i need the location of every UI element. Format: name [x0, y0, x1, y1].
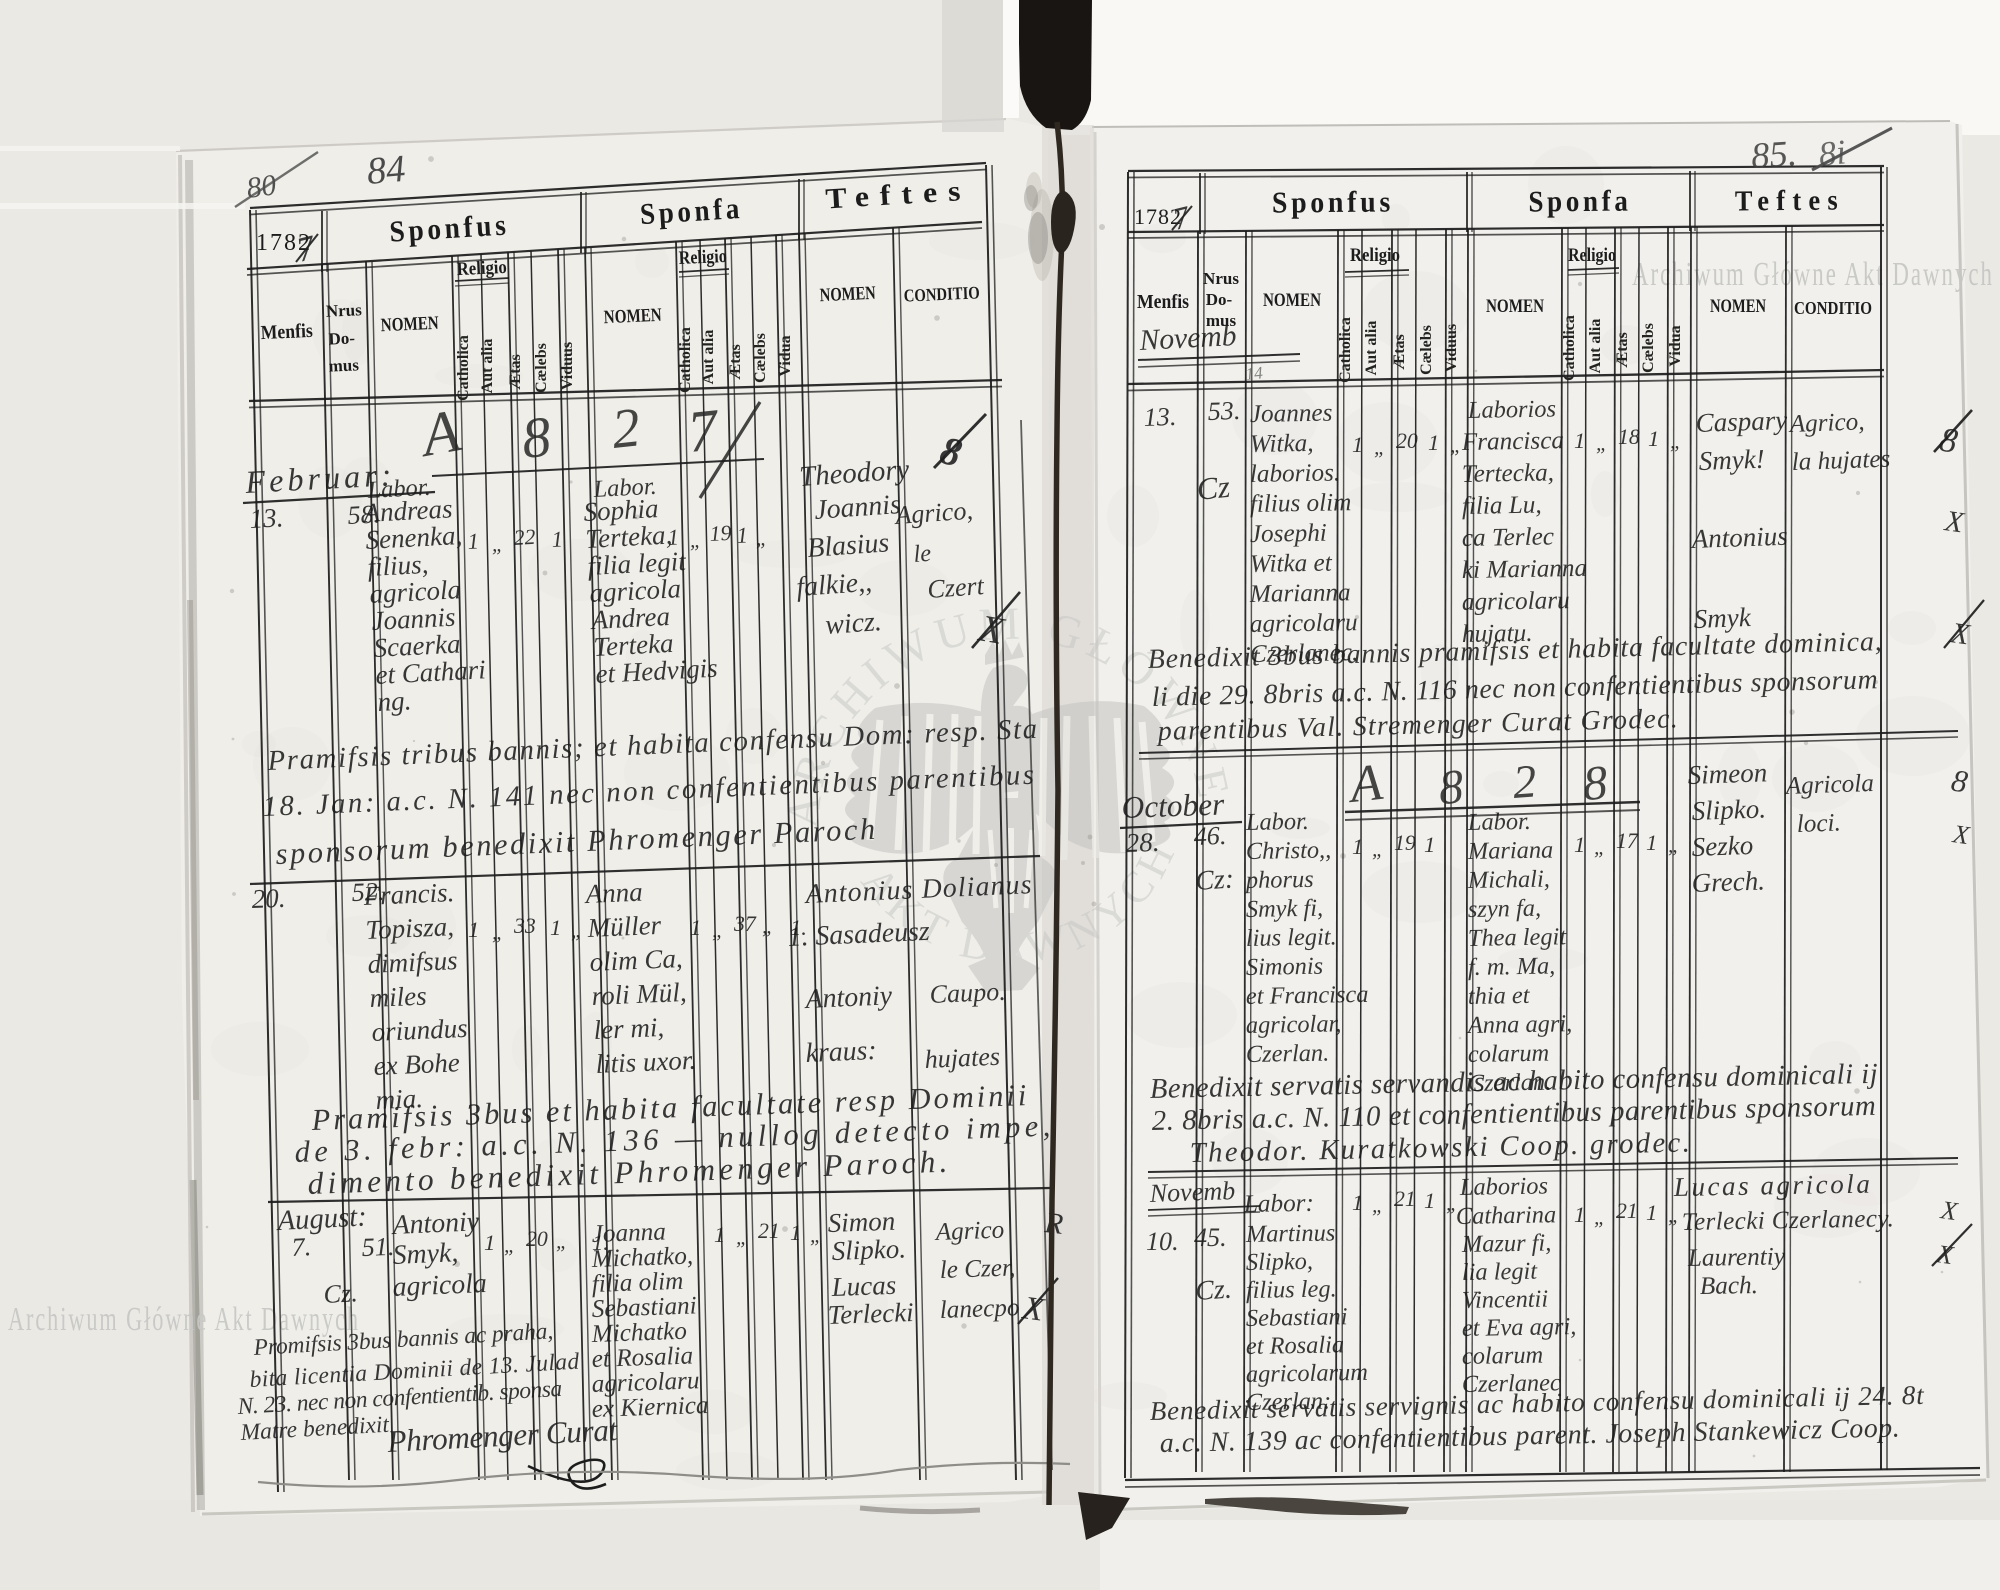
- svg-text:ca Terlec: ca Terlec: [1462, 523, 1555, 552]
- svg-text:17: 17: [1616, 829, 1639, 853]
- svg-text:„: „: [810, 1223, 822, 1247]
- svg-text:NOMEN: NOMEN: [1263, 290, 1321, 311]
- svg-text:ex Bohe: ex Bohe: [373, 1047, 460, 1081]
- svg-text:„: „: [1594, 835, 1606, 859]
- svg-text:lia legit: lia legit: [1462, 1258, 1539, 1286]
- svg-text:1: 1: [690, 915, 701, 940]
- svg-text:mus: mus: [328, 355, 359, 375]
- svg-text:„: „: [492, 532, 504, 556]
- svg-text:Sezko: Sezko: [1691, 830, 1753, 862]
- svg-text:Smyk fi,: Smyk fi,: [1246, 895, 1324, 923]
- svg-text:1: 1: [1574, 1202, 1585, 1227]
- svg-text:falkie,,: falkie,,: [795, 567, 873, 603]
- svg-text:1: 1: [1646, 830, 1657, 855]
- svg-text:Czerlan.: Czerlan.: [1246, 1040, 1330, 1068]
- svg-text:loci.: loci.: [1796, 809, 1841, 838]
- svg-text:„: „: [1596, 431, 1608, 455]
- svg-text:19: 19: [709, 521, 732, 546]
- svg-text:Cz: Cz: [1195, 469, 1232, 507]
- svg-text:1: 1: [790, 1220, 801, 1245]
- svg-text:et Francisca: et Francisca: [1246, 981, 1369, 1010]
- svg-text:Laborios: Laborios: [1459, 1172, 1549, 1201]
- svg-text:Terlecki: Terlecki: [827, 1297, 914, 1330]
- svg-text:1: 1: [468, 917, 479, 942]
- svg-text:1: 1: [1648, 426, 1659, 451]
- svg-text:Laborios: Laborios: [1467, 395, 1557, 424]
- svg-text:Grech.: Grech.: [1691, 865, 1765, 898]
- svg-text:„: „: [571, 918, 583, 942]
- svg-text:laborios.: laborios.: [1250, 459, 1341, 488]
- svg-text:Martinus: Martinus: [1245, 1219, 1336, 1248]
- svg-text:ki Marianna: ki Marianna: [1462, 555, 1588, 584]
- svg-text:lius legit.: lius legit.: [1246, 923, 1337, 952]
- svg-text:45.: 45.: [1194, 1223, 1227, 1252]
- svg-text:Michali,: Michali,: [1467, 866, 1550, 894]
- svg-text:„: „: [1372, 1193, 1384, 1217]
- svg-text:Anna: Anna: [583, 877, 643, 910]
- svg-text:Religio: Religio: [678, 246, 727, 269]
- svg-text:Antoniy: Antoniy: [390, 1206, 480, 1241]
- svg-text:Catholica: Catholica: [1337, 317, 1354, 383]
- svg-text:1: 1: [667, 524, 680, 550]
- svg-text:„: „: [1372, 837, 1384, 861]
- svg-text:filius olim: filius olim: [1250, 489, 1352, 518]
- svg-text:1: 1: [714, 1222, 725, 1247]
- svg-text:Vidua: Vidua: [777, 335, 794, 376]
- svg-text:20: 20: [526, 1227, 548, 1251]
- svg-text:litis uxor.: litis uxor.: [595, 1045, 697, 1079]
- svg-text:le: le: [913, 540, 933, 568]
- svg-text:phorus: phorus: [1244, 866, 1314, 894]
- svg-text:1: 1: [1424, 832, 1435, 857]
- svg-text:szyn fa,: szyn fa,: [1468, 895, 1542, 923]
- svg-text:Topisza,: Topisza,: [365, 911, 455, 945]
- svg-text:Sponfa: Sponfa: [639, 192, 744, 231]
- svg-text:Smyk!: Smyk!: [1698, 444, 1765, 476]
- svg-text:lanecpo: lanecpo: [939, 1294, 1020, 1324]
- svg-text:Aut alia: Aut alia: [1587, 319, 1604, 374]
- svg-text:Labor:: Labor:: [1243, 1190, 1314, 1218]
- svg-text:80: 80: [245, 169, 279, 205]
- svg-text:et Cathari: et Cathari: [375, 654, 487, 690]
- svg-text:agricola: agricola: [392, 1268, 487, 1303]
- svg-text:Tertecka,: Tertecka,: [1462, 459, 1555, 488]
- svg-text:Aut alia: Aut alia: [700, 330, 717, 385]
- svg-text:Sponfus: Sponfus: [1272, 185, 1394, 219]
- svg-text:1: 1: [1574, 832, 1585, 857]
- svg-text:Caupo.: Caupo.: [929, 977, 1006, 1009]
- svg-text:Antoniy: Antoniy: [803, 980, 893, 1015]
- svg-text:Nrus: Nrus: [1203, 269, 1239, 288]
- svg-text:„: „: [1670, 429, 1682, 453]
- svg-text:Religio: Religio: [1350, 245, 1400, 266]
- svg-text:Novemb: Novemb: [1148, 1176, 1235, 1208]
- svg-text:„: „: [1374, 435, 1386, 459]
- svg-text:f. m. Ma,: f. m. Ma,: [1468, 952, 1556, 981]
- svg-text:1: 1: [1424, 1188, 1435, 1213]
- svg-text:Catholica: Catholica: [455, 335, 472, 401]
- svg-text:„: „: [492, 920, 504, 944]
- svg-text:„: „: [1594, 1205, 1606, 1229]
- svg-text:Agricola: Agricola: [1783, 770, 1874, 800]
- svg-text:Ætas: Ætas: [1614, 332, 1631, 368]
- svg-text:10.: 10.: [1146, 1227, 1179, 1256]
- svg-text:Menfis: Menfis: [1137, 291, 1189, 313]
- svg-text:Müller: Müller: [586, 910, 662, 943]
- svg-text:hujates: hujates: [924, 1042, 1001, 1074]
- svg-text:filius leg.: filius leg.: [1246, 1275, 1337, 1304]
- svg-text:Caspary: Caspary: [1695, 405, 1788, 438]
- svg-text:Joannes: Joannes: [1250, 400, 1333, 428]
- svg-text:Ætas: Ætas: [1391, 334, 1408, 370]
- svg-text:Terlecki Czerlanecy.: Terlecki Czerlanecy.: [1682, 1205, 1894, 1236]
- svg-text:Francis.: Francis.: [362, 877, 455, 911]
- svg-text:thia et: thia et: [1468, 982, 1531, 1010]
- svg-text:NOMEN: NOMEN: [380, 313, 439, 337]
- svg-text:21: 21: [758, 1219, 780, 1243]
- svg-text:Agrico: Agrico: [933, 1217, 1004, 1246]
- svg-text:85.: 85.: [1750, 132, 1798, 176]
- svg-text:olim Ca,: olim Ca,: [589, 943, 683, 977]
- svg-text:51.: 51.: [361, 1232, 395, 1262]
- svg-text:dimifsus: dimifsus: [367, 945, 458, 979]
- svg-text:„: „: [504, 1233, 516, 1257]
- svg-text:Marianna: Marianna: [1249, 579, 1351, 608]
- svg-text:colarum: colarum: [1468, 1040, 1550, 1068]
- svg-text:agricolarum: agricolarum: [1246, 1359, 1368, 1388]
- svg-text:37: 37: [733, 912, 757, 936]
- svg-text:Thea legit: Thea legit: [1468, 923, 1568, 952]
- svg-text:agricolaru: agricolaru: [1250, 609, 1358, 638]
- svg-text:Simeon: Simeon: [1687, 757, 1767, 790]
- svg-text:Laurentiy: Laurentiy: [1687, 1243, 1786, 1272]
- svg-text:la hujates: la hujates: [1791, 446, 1891, 476]
- svg-text:Aut alia: Aut alia: [1363, 321, 1380, 376]
- svg-text:Agrico,: Agrico,: [1787, 408, 1865, 438]
- svg-text:„: „: [690, 528, 702, 552]
- svg-text:Sebastiani: Sebastiani: [1246, 1303, 1348, 1332]
- svg-text:1: 1: [736, 522, 749, 548]
- svg-text:et Rosalia: et Rosalia: [1246, 1331, 1345, 1360]
- svg-text:Simonis: Simonis: [1246, 953, 1324, 981]
- svg-text:„: „: [712, 918, 724, 942]
- svg-text:20.: 20.: [251, 883, 286, 914]
- svg-text:13.: 13.: [249, 502, 284, 534]
- svg-text:Cælebs: Cælebs: [533, 343, 550, 393]
- svg-text:1: 1: [467, 528, 480, 554]
- svg-text:wicz.: wicz.: [824, 606, 882, 641]
- svg-text:Cælebs: Cælebs: [1640, 323, 1657, 373]
- svg-text:miles: miles: [369, 981, 427, 1013]
- svg-text:1: 1: [1428, 430, 1439, 455]
- svg-text:Ætas: Ætas: [507, 354, 524, 390]
- svg-text:le Czer,: le Czer,: [939, 1254, 1015, 1284]
- svg-text:Religio: Religio: [456, 257, 507, 280]
- svg-text:Slipko,: Slipko,: [1246, 1248, 1314, 1276]
- svg-text:„: „: [1668, 1203, 1680, 1227]
- svg-text:kraus:: kraus:: [805, 1035, 877, 1069]
- svg-text:Josephi: Josephi: [1250, 520, 1327, 548]
- svg-text:22: 22: [513, 525, 536, 550]
- svg-text:CONDITIO: CONDITIO: [1794, 298, 1872, 318]
- svg-text:Mazur fi,: Mazur fi,: [1461, 1229, 1552, 1258]
- svg-text:Do-: Do-: [328, 328, 356, 348]
- svg-text:Witka et: Witka et: [1250, 550, 1333, 578]
- svg-text:1: 1: [1574, 428, 1585, 453]
- svg-text:NOMEN: NOMEN: [1486, 296, 1544, 317]
- svg-text:October: October: [1121, 786, 1226, 825]
- svg-text:NOMEN: NOMEN: [1710, 296, 1766, 317]
- svg-text:„: „: [762, 914, 774, 938]
- svg-text:roli Mül,: roli Mül,: [591, 977, 687, 1011]
- svg-text:Catholica: Catholica: [1561, 315, 1578, 381]
- svg-text:7.: 7.: [291, 1232, 312, 1262]
- svg-text:46.: 46.: [1193, 821, 1227, 851]
- svg-text:Bach.: Bach.: [1700, 1272, 1759, 1300]
- svg-text:„: „: [556, 1229, 568, 1253]
- svg-text:Archiwum Główne Akt Dawnych: Archiwum Główne Akt Dawnych: [1632, 256, 1994, 293]
- svg-text:Labor.: Labor.: [1245, 808, 1310, 836]
- svg-text:Cz:: Cz:: [1194, 863, 1235, 897]
- svg-text:20: 20: [1396, 429, 1418, 453]
- svg-text:1: 1: [484, 1230, 495, 1255]
- svg-text:NOMEN: NOMEN: [603, 305, 662, 329]
- svg-text:19: 19: [1394, 831, 1416, 855]
- svg-text:Agrico,: Agrico,: [892, 496, 973, 530]
- svg-text:21: 21: [1394, 1187, 1416, 1211]
- svg-text:84: 84: [365, 148, 407, 193]
- svg-text:CONDITIO: CONDITIO: [903, 282, 980, 305]
- svg-text:„: „: [1668, 833, 1680, 857]
- svg-text:Cælebs: Cælebs: [1418, 325, 1435, 375]
- svg-text:NOMEN: NOMEN: [819, 283, 876, 306]
- svg-text:Slipko.: Slipko.: [1691, 793, 1766, 826]
- svg-text:„: „: [756, 526, 768, 550]
- svg-text:Cz.: Cz.: [1194, 1274, 1232, 1307]
- svg-text:Vincentii: Vincentii: [1462, 1285, 1549, 1314]
- svg-text:Do-: Do-: [1206, 290, 1233, 309]
- svg-text:14: 14: [1244, 362, 1264, 384]
- svg-text:Witka,: Witka,: [1250, 430, 1314, 458]
- svg-text:Slipko.: Slipko.: [831, 1233, 906, 1266]
- svg-text:Smyk,: Smyk,: [392, 1237, 459, 1271]
- svg-text:Religio: Religio: [1568, 245, 1616, 266]
- svg-text:Christo,,: Christo,,: [1246, 837, 1332, 865]
- svg-text:„: „: [1450, 433, 1462, 457]
- svg-text:August:: August:: [275, 1200, 368, 1237]
- svg-text:Anna agri,: Anna agri,: [1466, 1010, 1573, 1039]
- svg-text:Vidua: Vidua: [1667, 325, 1684, 366]
- svg-text:Lucas agricola: Lucas agricola: [1673, 1169, 1870, 1202]
- svg-text:agricolar,: agricolar,: [1246, 1010, 1342, 1039]
- svg-text:53.: 53.: [1207, 396, 1241, 426]
- svg-text:Antonius: Antonius: [1689, 521, 1788, 554]
- svg-text:1: 1: [1352, 1190, 1363, 1215]
- svg-text:colarum: colarum: [1462, 1342, 1544, 1370]
- svg-text:Labor.: Labor.: [1467, 808, 1532, 836]
- svg-text:et Eva agri,: et Eva agri,: [1462, 1313, 1577, 1342]
- svg-text:Aut alia: Aut alia: [479, 339, 496, 394]
- svg-text:Mariana: Mariana: [1467, 837, 1554, 866]
- svg-text:8: 8: [1437, 759, 1465, 815]
- svg-text:Czert: Czert: [926, 571, 985, 604]
- svg-text:33: 33: [513, 914, 536, 938]
- svg-text:agricolaru: agricolaru: [1462, 587, 1570, 616]
- svg-text:et Hedvigis: et Hedvigis: [595, 653, 719, 689]
- svg-text:1: 1: [1352, 834, 1363, 859]
- svg-text:1: 1: [550, 915, 561, 940]
- svg-text:Teftes: Teftes: [1735, 185, 1845, 218]
- svg-text:Francisca: Francisca: [1461, 427, 1565, 456]
- svg-text:1: 1: [551, 526, 564, 552]
- svg-text:Menfis: Menfis: [260, 320, 313, 344]
- svg-text:Cz.: Cz.: [323, 1278, 359, 1309]
- svg-text:13.: 13.: [1143, 402, 1177, 432]
- svg-text:Ætas: Ætas: [727, 344, 744, 380]
- svg-text:Joannis: Joannis: [813, 489, 901, 526]
- svg-text:1: 1: [1352, 432, 1363, 457]
- svg-text:Viduus: Viduus: [559, 342, 576, 390]
- svg-text:Viduus: Viduus: [1443, 324, 1460, 372]
- svg-text:ng.: ng.: [377, 685, 412, 717]
- svg-text:ler mi,: ler mi,: [593, 1012, 665, 1045]
- svg-text:Novemb: Novemb: [1138, 320, 1238, 357]
- svg-text:28.: 28.: [1125, 827, 1160, 858]
- svg-text:21: 21: [1616, 1199, 1638, 1223]
- svg-text:Cælebs: Cælebs: [752, 333, 769, 383]
- svg-text:oriundus: oriundus: [371, 1013, 468, 1047]
- svg-text:Sponfa: Sponfa: [1528, 185, 1631, 219]
- svg-text:„: „: [736, 1225, 748, 1249]
- svg-text:1. Sasadeusz: 1. Sasadeusz: [787, 916, 930, 953]
- svg-text:Catharina: Catharina: [1456, 1201, 1557, 1230]
- svg-text:Catholica: Catholica: [677, 327, 694, 393]
- svg-text:18: 18: [1618, 425, 1640, 449]
- svg-text:Nrus: Nrus: [325, 300, 362, 321]
- svg-text:filia Lu,: filia Lu,: [1462, 492, 1542, 520]
- svg-text:1: 1: [1646, 1200, 1657, 1225]
- svg-text:2: 2: [1511, 755, 1538, 809]
- svg-text:Blasius: Blasius: [806, 527, 890, 564]
